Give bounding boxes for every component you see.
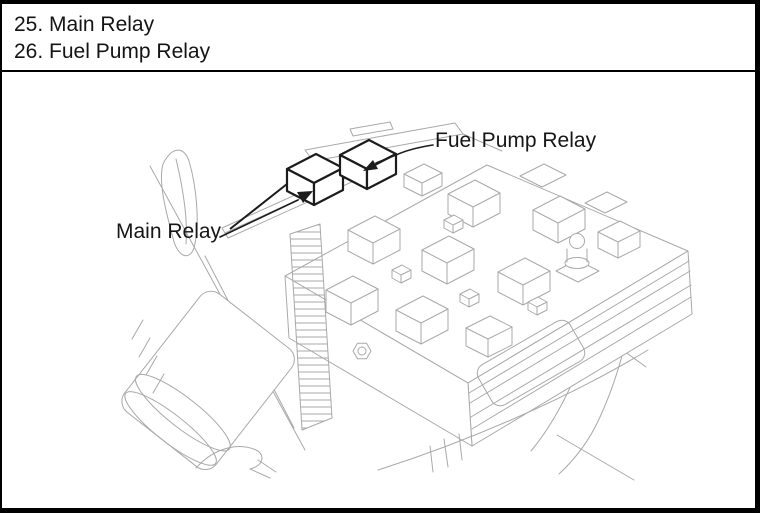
- small-bolt: [353, 343, 371, 359]
- engine-relay-box-illustration: [2, 72, 755, 506]
- legend-item-fuel-pump-relay: 26. Fuel Pump Relay: [14, 38, 755, 65]
- relay-location-diagram: Fuel Pump Relay Main Relay: [2, 72, 755, 506]
- legend-label: Fuel Pump Relay: [49, 40, 210, 63]
- figure-frame: 25. Main Relay 26. Fuel Pump Relay: [0, 0, 760, 513]
- legend-number: 25.: [14, 13, 43, 36]
- callout-fuel-pump-relay: Fuel Pump Relay: [435, 129, 596, 153]
- callout-main-relay: Main Relay: [116, 220, 221, 244]
- legend-label: Main Relay: [49, 13, 154, 36]
- legend-item-main-relay: 25. Main Relay: [14, 11, 755, 38]
- engine-background-lines: [115, 122, 692, 480]
- relay-legend: 25. Main Relay 26. Fuel Pump Relay: [2, 4, 755, 72]
- legend-number: 26.: [14, 40, 43, 63]
- manual-page: 25. Main Relay 26. Fuel Pump Relay: [0, 0, 768, 513]
